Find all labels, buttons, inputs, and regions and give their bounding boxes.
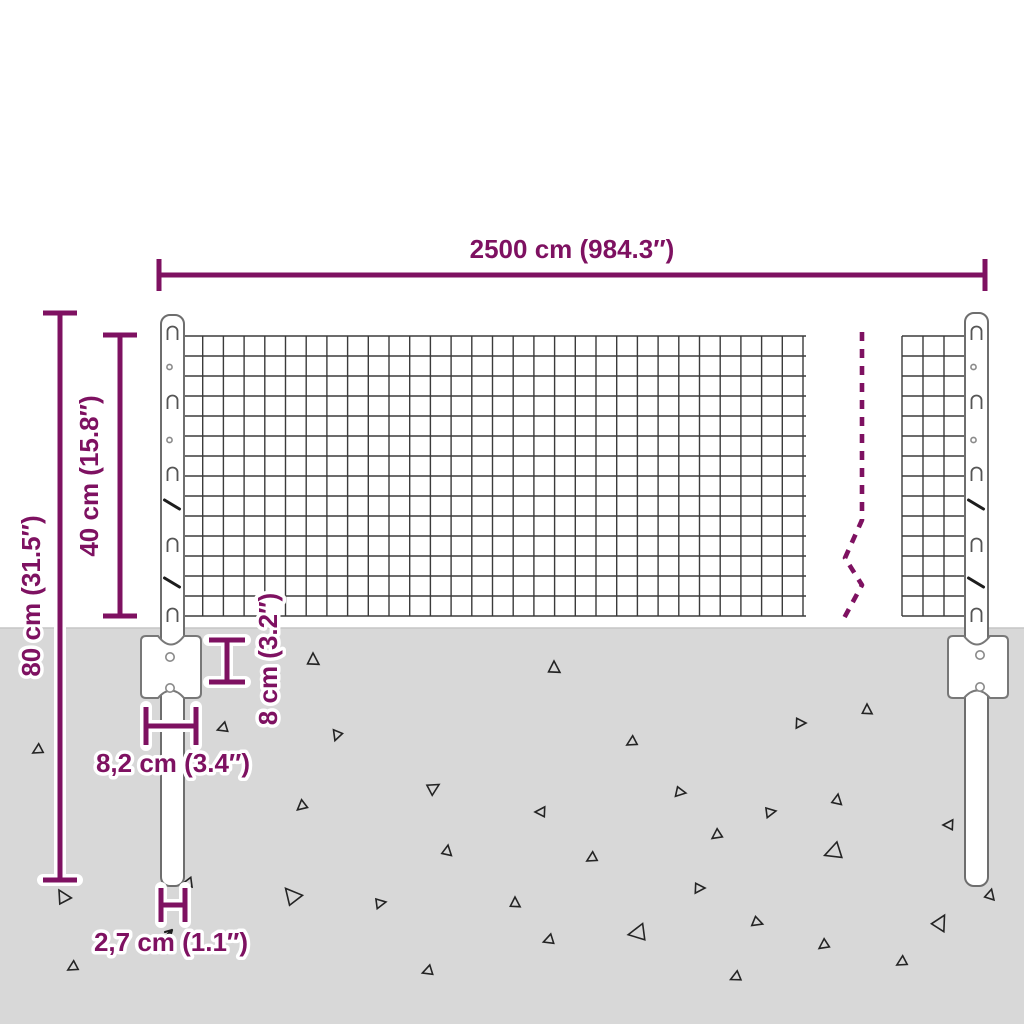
total-height-dimension-label: 80 cm (31.5″) xyxy=(16,515,46,676)
diagram-canvas: 2500 cm (984.3″) 80 cm (31.5″) 40 cm (15… xyxy=(0,0,1024,1024)
post-hole xyxy=(971,364,976,369)
left-anchor-plate xyxy=(141,636,201,698)
right-post xyxy=(965,313,988,886)
right-anchor-plate xyxy=(948,636,1008,698)
post-hole xyxy=(971,437,976,442)
left-post xyxy=(161,315,184,886)
plate-hole xyxy=(166,653,174,661)
plate-hole xyxy=(976,651,984,659)
plate-width-dimension-label: 8,2 cm (3.4″) xyxy=(96,748,250,778)
post-diameter-dimension-label: 2,7 cm (1.1″) xyxy=(94,927,248,957)
width-dimension-label: 2500 cm (984.3″) xyxy=(470,234,675,264)
post-hole xyxy=(167,437,172,442)
fence-dimension-diagram: 2500 cm (984.3″) 80 cm (31.5″) 40 cm (15… xyxy=(0,0,1024,1024)
post-hole xyxy=(167,364,172,369)
plate-hole xyxy=(976,683,984,691)
mesh-height-dimension-label: 40 cm (15.8″) xyxy=(74,395,104,556)
plate-height-dimension-label: 8 cm (3.2″) xyxy=(253,593,283,725)
plate-hole xyxy=(166,684,174,692)
